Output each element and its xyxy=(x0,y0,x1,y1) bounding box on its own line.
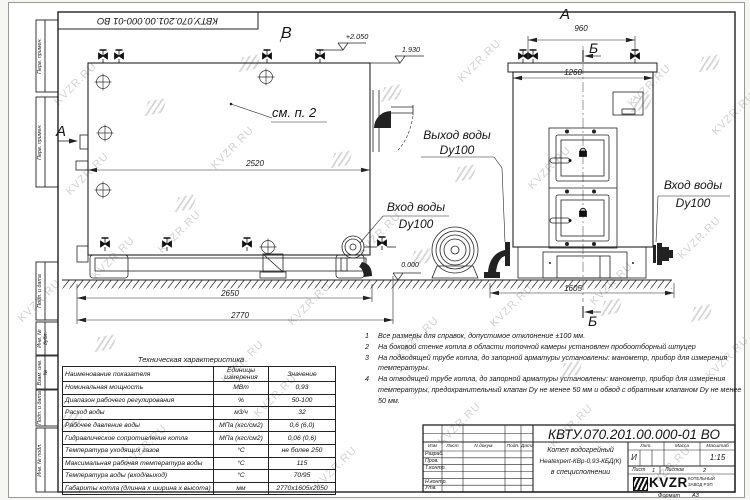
cell: МПа (кгс/см2) xyxy=(214,419,269,432)
see-note-callout: см. п. 2 xyxy=(272,106,316,121)
tech-table: Наименование показателя Единицы измерени… xyxy=(62,366,336,495)
cell: мм xyxy=(214,482,269,495)
inlet-left-callout-line2: Dy100 xyxy=(383,218,449,232)
note-item: 2 На боковой стенке котла в области топо… xyxy=(357,342,745,353)
col-header: Единицы измерения xyxy=(214,367,269,382)
cell: МПа (кгс/см2) xyxy=(214,432,269,445)
product-title-line2: Heatexpert-КВр-0,93-КБД(К) xyxy=(533,458,628,465)
cell: % xyxy=(214,394,269,407)
table-row: Температура уходящих газов°Сне более 250 xyxy=(63,444,336,457)
note-number: 4 xyxy=(357,374,369,406)
sheet-label: Лист xyxy=(632,468,645,474)
cell: Номинальная мощность xyxy=(63,382,214,395)
col-list: Лист xyxy=(442,444,463,450)
cell: Расход воды xyxy=(63,407,214,420)
col-data: Дата xyxy=(521,444,533,450)
cell: 32 xyxy=(269,407,336,420)
margin-perv-primen-1: Перв. примен. xyxy=(37,20,46,92)
top-stamp: КВТУ.070.201.00.000-01 ВО xyxy=(58,13,257,28)
dim-2770: 2770 xyxy=(210,311,270,320)
table-row: Наименование показателя Единицы измерени… xyxy=(63,367,336,382)
table-row: Рабочее давление водыМПа (кгс/см2)0,6 (6… xyxy=(63,419,336,432)
dim-1605: 1605 xyxy=(548,284,598,293)
table-row: Номинальная мощностьМВт0,93 xyxy=(63,382,336,395)
cell: Максимальная рабочая температура воды xyxy=(63,457,214,470)
outlet-callout-line1: Выход воды xyxy=(420,129,494,143)
cell: Температура уходящих газов xyxy=(63,444,214,457)
note-text: На отводящей трубе котла, до запорной ар… xyxy=(378,374,745,406)
elevation-mid: 1.930 xyxy=(396,46,426,54)
dim-2520: 2520 xyxy=(230,159,280,168)
note-number: 2 xyxy=(357,342,369,353)
col-podp: Подп. xyxy=(505,444,521,450)
row-tkontr: Т.контр. xyxy=(425,466,446,472)
outlet-callout-line2: Dy100 xyxy=(420,144,494,158)
cell: не более 250 xyxy=(269,444,336,457)
dim-960: 960 xyxy=(556,24,606,33)
cell: Температура воды (вход/выход) xyxy=(63,470,214,483)
note-number: 1 xyxy=(357,331,369,342)
view-label-a-left: А xyxy=(56,123,66,140)
sheets-label: Листов xyxy=(665,468,684,474)
cell: 0,06 (0,6) xyxy=(269,432,336,445)
cell: Диапазон рабочего регулирования xyxy=(63,394,214,407)
margin-inv-dubl: Инв. № дубл. xyxy=(37,322,46,355)
note-item: 1 Все размеры для справок, допустимое от… xyxy=(357,331,745,342)
col-header: Наименование показателя xyxy=(63,367,214,382)
table-row: Гидравлическое сопротивление котлаМПа (к… xyxy=(63,432,336,445)
cut-label-b-bottom: Б xyxy=(588,313,597,329)
drawing-sheet-page: KVZR.RU KVZR.RU KVZR.RU KVZR.RU KVZR.RU … xyxy=(0,0,750,500)
cell: м3/ч xyxy=(214,407,269,420)
dim-2650: 2650 xyxy=(200,289,260,298)
elevation-zero: 0.000 xyxy=(396,262,424,270)
tech-table-title: Техническая характеристика xyxy=(62,356,320,365)
view-label-b: В xyxy=(281,25,292,43)
mass-label: Масса xyxy=(664,444,700,450)
doc-number: КВТУ.070.201.00.000-01 ВО xyxy=(533,427,735,443)
product-title-line1: Котел водогрейный xyxy=(533,447,628,455)
inlet-left-callout-line1: Вход воды xyxy=(383,201,449,215)
note-item: 3 На подводящей трубе котла, до запорной… xyxy=(357,353,745,375)
format-label: Формат xyxy=(658,493,680,499)
cell: 0,6 (6,0) xyxy=(269,419,336,432)
table-row: Диапазон рабочего регулирования%50-100 xyxy=(63,394,336,407)
inlet-fitting xyxy=(653,243,673,265)
lit-value: И xyxy=(628,453,640,462)
cell: °С xyxy=(214,444,269,457)
note-text: На подводящей трубе котла, до запорной а… xyxy=(378,353,745,375)
table-row: Максимальная рабочая температура воды°С1… xyxy=(63,457,336,470)
elevation-marks xyxy=(320,43,424,280)
scale-label: Масштаб xyxy=(700,444,735,450)
lit-label: Лит. xyxy=(628,444,664,450)
cell: 70/95 xyxy=(269,470,336,483)
cell: 50-100 xyxy=(269,394,336,407)
note-text: На боковой стенке котла в области топочн… xyxy=(378,342,696,353)
row-utv: Утв. xyxy=(425,486,437,492)
outlet-fitting xyxy=(484,242,510,278)
note-number: 3 xyxy=(357,353,369,375)
right-view xyxy=(484,36,730,318)
cell: 2770х1605х2050 xyxy=(269,482,336,495)
col-izm: Изм xyxy=(423,444,442,450)
cell: 0,93 xyxy=(269,382,336,395)
dim-1260: 1260 xyxy=(548,68,598,77)
table-row: Температура воды (вход/выход)°С70/95 xyxy=(63,470,336,483)
notes-list: 1 Все размеры для справок, допустимое от… xyxy=(357,331,745,407)
margin-vzam-inv: Взам. инв. № xyxy=(37,356,46,389)
kvzr-logo-text: KVZR xyxy=(649,475,688,490)
margin-podp-data-1: Подп. и дата xyxy=(37,262,46,320)
kvzr-logo-icon xyxy=(633,477,648,491)
company-line2: ЗАВОД РЭП xyxy=(688,483,713,488)
view-label-a-top: А xyxy=(560,6,570,23)
cell: °С xyxy=(214,457,269,470)
blower xyxy=(432,227,478,278)
pump xyxy=(341,236,372,277)
format-value: А3 xyxy=(692,493,699,499)
product-title-line3: в специсполнении xyxy=(533,469,628,477)
margin-perv-primen-2: Перв. примен. xyxy=(37,97,46,187)
cut-label-b-top: Б xyxy=(589,40,598,56)
note-text: Все размеры для справок, допустимое откл… xyxy=(378,331,585,342)
scale-value: 1:15 xyxy=(700,453,735,462)
margin-inv-podl: Инв. № подл. xyxy=(37,428,46,492)
cell: Габариты котла (длинна х ширина х высота… xyxy=(63,482,214,495)
table-row: Расход водым3/ч32 xyxy=(63,407,336,420)
sheets-value: 2 xyxy=(703,468,706,474)
col-ndoc: N докум. xyxy=(463,444,505,450)
note-item: 4 На отводящей трубе котла, до запорной … xyxy=(357,374,745,406)
col-header: Значение xyxy=(269,367,336,382)
cell: 115 xyxy=(269,457,336,470)
elevation-top: +2.050 xyxy=(340,33,374,41)
table-row: Габариты котла (длинна х ширина х высота… xyxy=(63,482,336,495)
inlet-right-callout-line1: Вход воды xyxy=(657,179,729,193)
cell: Гидравлическое сопротивление котла xyxy=(63,432,214,445)
cell: МВт xyxy=(214,382,269,395)
cell: Рабочее давление воды xyxy=(63,419,214,432)
sheet-value: 1 xyxy=(652,468,655,474)
margin-podp-data-2: Подп. и дата xyxy=(37,390,46,426)
inlet-right-callout-line2: Dy100 xyxy=(657,197,729,211)
flue xyxy=(373,90,413,152)
cell: °С xyxy=(214,470,269,483)
